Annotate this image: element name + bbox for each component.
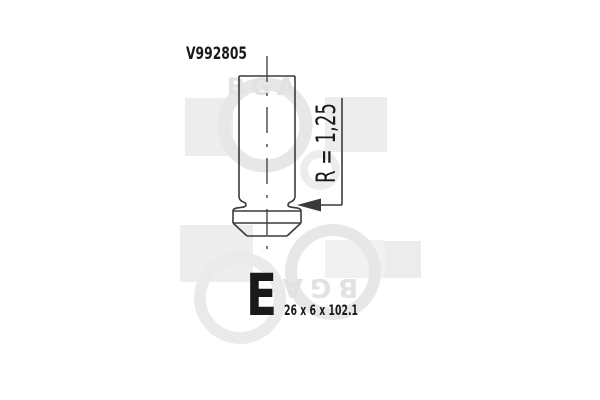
valve-drawing-svg: BGA BGA	[0, 0, 600, 400]
valve-type-letter: E	[246, 261, 277, 329]
watermark-brand-text-rotated: BGA	[276, 272, 358, 302]
watermark-square	[385, 241, 421, 278]
valve-technical-drawing-page: BGA BGA	[0, 0, 600, 400]
part-number: V992805	[186, 44, 247, 64]
valve-groove-left	[233, 197, 246, 211]
valve-dimensions: 26 x 6 x 102.1	[284, 303, 358, 319]
valve-groove-right	[288, 197, 301, 211]
radius-label: R = 1,25	[311, 103, 342, 183]
valve-head-taper-right	[287, 223, 301, 236]
watermark-brand-text: BGA	[227, 73, 302, 101]
